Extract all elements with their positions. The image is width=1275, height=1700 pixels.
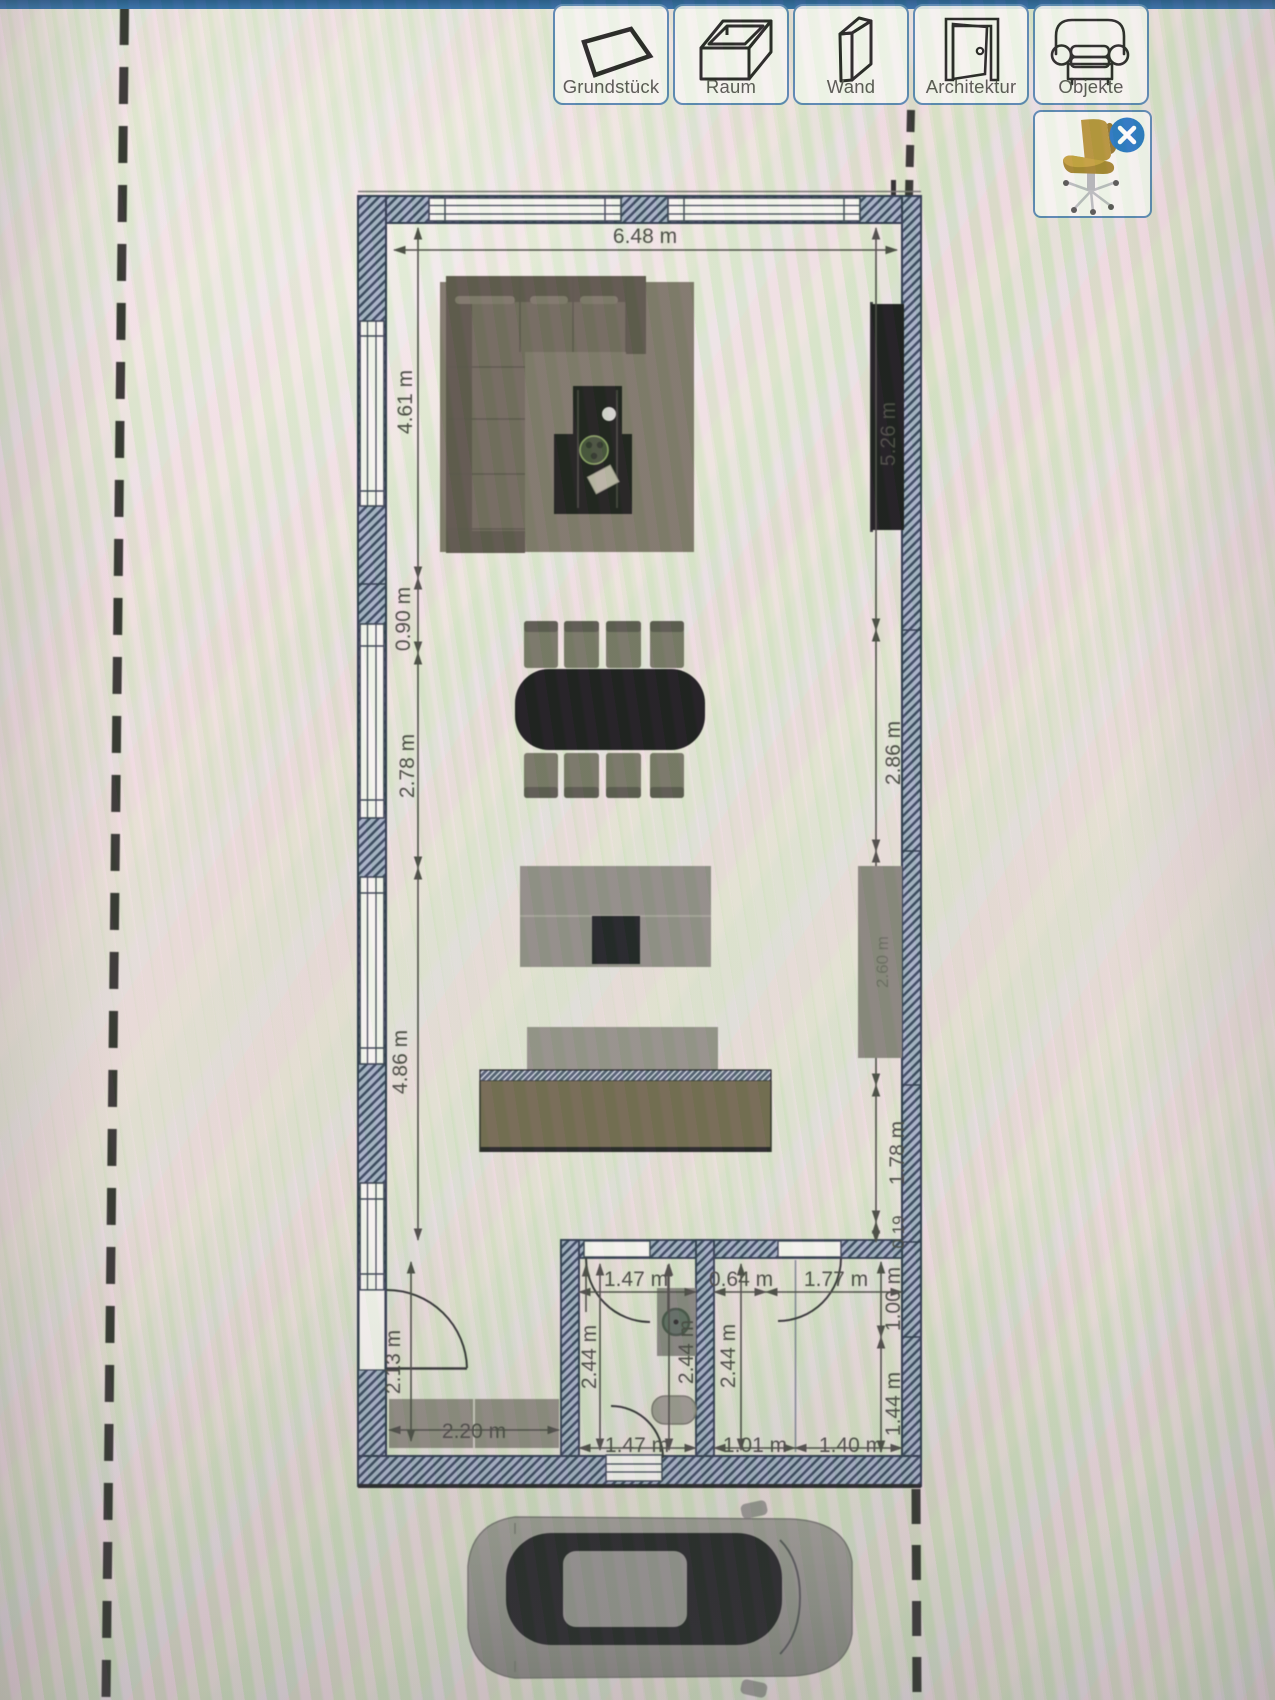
svg-text:1.78 m: 1.78 m bbox=[886, 1121, 909, 1185]
svg-text:1.77 m: 1.77 m bbox=[804, 1268, 868, 1291]
svg-text:1.44 m: 1.44 m bbox=[882, 1372, 905, 1436]
svg-text:2.44 m: 2.44 m bbox=[717, 1324, 740, 1388]
svg-text:2.20 m: 2.20 m bbox=[442, 1420, 506, 1443]
svg-text:0.64 m: 0.64 m bbox=[709, 1268, 773, 1291]
svg-text:2.44 m: 2.44 m bbox=[578, 1325, 601, 1389]
svg-text:1.00 m: 1.00 m bbox=[882, 1267, 905, 1331]
svg-text:1.40 m: 1.40 m bbox=[819, 1434, 883, 1457]
svg-text:1.47 m: 1.47 m bbox=[605, 1434, 669, 1457]
svg-text:4.61 m: 4.61 m bbox=[394, 370, 417, 434]
svg-text:2.78 m: 2.78 m bbox=[396, 734, 419, 798]
svg-text:1.01 m: 1.01 m bbox=[723, 1434, 787, 1457]
svg-text:2.86 m: 2.86 m bbox=[882, 721, 905, 785]
svg-text:1.47 m: 1.47 m bbox=[604, 1268, 668, 1291]
svg-text:4.86 m: 4.86 m bbox=[389, 1030, 412, 1094]
svg-text:0.90 m: 0.90 m bbox=[392, 587, 415, 651]
svg-text:0.19: 0.19 bbox=[889, 1215, 908, 1248]
svg-text:6.48 m: 6.48 m bbox=[613, 225, 677, 248]
svg-text:2.44 m: 2.44 m bbox=[675, 1320, 698, 1384]
svg-text:2.60 m: 2.60 m bbox=[873, 936, 892, 988]
svg-text:5.26 m: 5.26 m bbox=[877, 402, 900, 466]
svg-text:2.13 m: 2.13 m bbox=[382, 1330, 405, 1394]
